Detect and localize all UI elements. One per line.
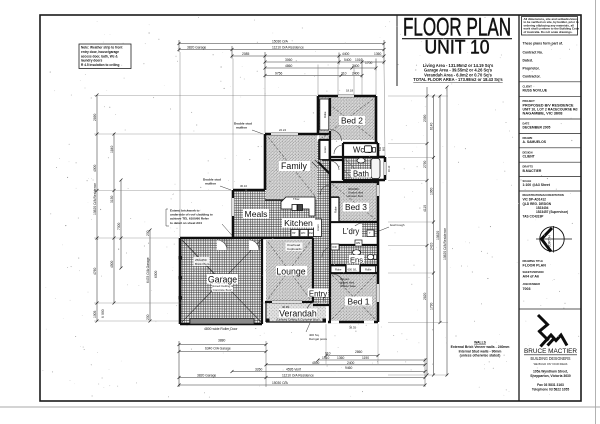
svg-text:Bed 3: Bed 3 bbox=[345, 202, 367, 212]
svg-text:7003: 7003 bbox=[523, 287, 531, 291]
svg-text:REGISTRATION/ACCREDITATION: REGISTRATION/ACCREDITATION bbox=[523, 193, 564, 197]
svg-text:Telephone 03 5822 1055: Telephone 03 5822 1055 bbox=[532, 387, 569, 391]
svg-text:2790: 2790 bbox=[423, 160, 427, 168]
svg-text:Linen: Linen bbox=[323, 146, 327, 153]
svg-text:2390: 2390 bbox=[423, 114, 427, 122]
svg-text:to detail on sheet A04: to detail on sheet A04 bbox=[170, 221, 202, 225]
svg-text:of Australia. Do not scale dra: of Australia. Do not scale drawings. bbox=[524, 30, 573, 34]
svg-text:4595 Verif: 4595 Verif bbox=[286, 368, 301, 372]
svg-text:Lounge: Lounge bbox=[276, 267, 305, 277]
svg-text:Dated.: Dated. bbox=[523, 58, 533, 62]
svg-text:L'dry: L'dry bbox=[343, 227, 360, 236]
svg-text:A. SAMUELOS: A. SAMUELOS bbox=[523, 140, 547, 144]
svg-text:CLIENT: CLIENT bbox=[523, 155, 536, 159]
svg-text:shower base: shower base bbox=[340, 284, 356, 288]
svg-text:3150: 3150 bbox=[110, 195, 114, 203]
svg-text:TOTAL FLOOR AREA - 173.98m2 or: TOTAL FLOOR AREA - 173.98m2 or 18.43 Sq'… bbox=[413, 77, 503, 82]
svg-text:These plans form part of.: These plans form part of. bbox=[523, 42, 564, 46]
svg-text:Wc: Wc bbox=[353, 145, 364, 154]
svg-text:DECEMBER 2005: DECEMBER 2005 bbox=[523, 126, 551, 130]
svg-text:16.10: 16.10 bbox=[388, 165, 391, 172]
svg-text:UNIT 10: UNIT 10 bbox=[425, 37, 490, 59]
svg-text:T/bar: T/bar bbox=[293, 197, 300, 201]
svg-text:4500: 4500 bbox=[110, 260, 114, 268]
svg-text:30.10: 30.10 bbox=[240, 184, 247, 188]
svg-text:4860: 4860 bbox=[285, 64, 293, 68]
svg-text:Meals: Meals bbox=[245, 209, 268, 219]
svg-text:6000: 6000 bbox=[154, 270, 158, 278]
svg-text:1060: 1060 bbox=[430, 187, 434, 195]
svg-text:3820 Garage: 3820 Garage bbox=[197, 374, 216, 378]
svg-text:105a Wyndham Street,: 105a Wyndham Street, bbox=[533, 370, 568, 374]
svg-text:Robe: Robe bbox=[365, 268, 372, 272]
svg-text:4760: 4760 bbox=[93, 267, 97, 275]
svg-text:WE BUILD ON YOUR IDEAS: WE BUILD ON YOUR IDEAS bbox=[534, 362, 568, 366]
svg-text:3820 Garage: 3820 Garage bbox=[187, 45, 206, 49]
svg-text:15030 O/A: 15030 O/A bbox=[272, 39, 289, 43]
svg-text:BRUCE MACTIER: BRUCE MACTIER bbox=[524, 348, 577, 355]
svg-text:mullion: mullion bbox=[236, 126, 247, 130]
svg-text:1190: 1190 bbox=[362, 356, 369, 360]
svg-text:Bed 2: Bed 2 bbox=[341, 116, 363, 126]
svg-text:2085: 2085 bbox=[242, 52, 250, 56]
svg-text:1840: 1840 bbox=[110, 145, 114, 153]
svg-text:3260: 3260 bbox=[255, 368, 263, 372]
svg-text:2860: 2860 bbox=[355, 350, 363, 354]
svg-text:40.99: 40.99 bbox=[282, 305, 289, 309]
svg-text:10820: 10820 bbox=[436, 231, 440, 240]
svg-text:4110: 4110 bbox=[423, 205, 427, 212]
svg-text:NAGAMBIE, VIC 3608: NAGAMBIE, VIC 3608 bbox=[523, 112, 563, 116]
svg-text:18.18: 18.18 bbox=[346, 89, 353, 93]
svg-text:Kitchen: Kitchen bbox=[284, 218, 313, 228]
svg-text:3060: 3060 bbox=[285, 58, 293, 62]
svg-text:NORTH: NORTH bbox=[548, 235, 552, 249]
svg-text:Ens: Ens bbox=[350, 255, 363, 264]
svg-text:1:100 @A3 Sheet: 1:100 @A3 Sheet bbox=[523, 183, 551, 187]
svg-text:2890: 2890 bbox=[93, 113, 97, 121]
svg-text:6478 O/A Garage: 6478 O/A Garage bbox=[146, 257, 150, 283]
svg-text:Contract No.: Contract No. bbox=[523, 51, 543, 55]
svg-text:1360: 1360 bbox=[337, 356, 345, 360]
svg-text:Cupboards: Cupboards bbox=[287, 247, 302, 251]
svg-text:JOB NUMBER: JOB NUMBER bbox=[523, 282, 541, 286]
svg-text:Dwngal posts: Dwngal posts bbox=[309, 337, 328, 341]
svg-text:BUILDING DESIGNERS: BUILDING DESIGNERS bbox=[531, 356, 571, 361]
svg-text:1910: 1910 bbox=[322, 356, 330, 360]
svg-text:910: 910 bbox=[325, 352, 331, 356]
svg-text:DRAWING TITLE: DRAWING TITLE bbox=[523, 259, 544, 263]
svg-text:10820 O/A Residence: 10820 O/A Residence bbox=[443, 228, 447, 260]
svg-text:1790: 1790 bbox=[430, 302, 434, 310]
svg-text:Garage: Garage bbox=[208, 275, 237, 285]
svg-text:D/R: D/R bbox=[333, 246, 337, 249]
svg-text:2820: 2820 bbox=[423, 292, 427, 300]
svg-text:Bath: Bath bbox=[353, 170, 369, 179]
svg-text:Robe: Robe bbox=[334, 206, 338, 213]
svg-text:Fax 03 5831 3163: Fax 03 5831 3163 bbox=[537, 383, 564, 387]
svg-text:600 S/L: 600 S/L bbox=[348, 268, 358, 272]
svg-text:RUSS NOVLUE: RUSS NOVLUE bbox=[523, 89, 548, 93]
svg-text:A04 of A6: A04 of A6 bbox=[523, 274, 539, 278]
svg-text:2400: 2400 bbox=[352, 71, 360, 75]
svg-text:bowl trough: bowl trough bbox=[390, 223, 405, 227]
svg-text:Robe: Robe bbox=[335, 268, 342, 272]
svg-text:Concrete floor): Concrete floor) bbox=[213, 288, 233, 292]
svg-text:9460: 9460 bbox=[345, 366, 353, 370]
svg-text:2400: 2400 bbox=[347, 361, 355, 365]
svg-text:4400: 4400 bbox=[342, 52, 350, 56]
svg-text:B.MACTIER: B.MACTIER bbox=[523, 169, 542, 173]
svg-text:Shepparton, Victoria 3630: Shepparton, Victoria 3630 bbox=[530, 374, 571, 378]
svg-text:1005: 1005 bbox=[93, 310, 97, 318]
svg-text:FLOOR PLAN: FLOOR PLAN bbox=[523, 264, 547, 268]
svg-text:11210 O/A Residence: 11210 O/A Residence bbox=[282, 374, 314, 378]
svg-text:4800 wide Roller Door: 4800 wide Roller Door bbox=[204, 327, 238, 331]
svg-text:Linen: Linen bbox=[316, 224, 320, 231]
svg-text:4000: 4000 bbox=[93, 164, 97, 172]
svg-text:WO: WO bbox=[301, 232, 305, 235]
svg-text:WM: WM bbox=[356, 242, 360, 245]
svg-text:1010: 1010 bbox=[355, 58, 363, 62]
svg-text:4590: 4590 bbox=[312, 361, 320, 365]
svg-text:Bed 1: Bed 1 bbox=[348, 297, 370, 307]
svg-text:22.24: 22.24 bbox=[279, 128, 286, 132]
svg-text:9756: 9756 bbox=[275, 71, 283, 75]
svg-text:Contractor.: Contractor. bbox=[523, 75, 541, 79]
svg-text:Brick Piers: Brick Piers bbox=[195, 262, 210, 266]
svg-text:shower floor: shower floor bbox=[348, 194, 363, 198]
svg-text:mullion: mullion bbox=[205, 182, 216, 186]
svg-text:Entry: Entry bbox=[309, 289, 327, 298]
svg-text:TAS CC4319P: TAS CC4319P bbox=[523, 214, 545, 218]
svg-text:230: 230 bbox=[146, 230, 150, 236]
svg-text:1360: 1360 bbox=[374, 52, 382, 56]
svg-text:230: 230 bbox=[146, 314, 150, 320]
svg-text:3880: 3880 bbox=[218, 339, 226, 343]
svg-text:(Unlined Ceiling & Concrete fl: (Unlined Ceiling & Concrete floor) bbox=[276, 317, 319, 321]
svg-text:38.35: 38.35 bbox=[349, 326, 356, 330]
svg-text:Robe: Robe bbox=[323, 111, 327, 118]
svg-text:HP: HP bbox=[292, 232, 296, 235]
svg-text:SHEET/VERSION: SHEET/VERSION bbox=[523, 270, 544, 274]
svg-text:5400: 5400 bbox=[344, 58, 352, 62]
svg-text:6140: 6140 bbox=[430, 122, 434, 130]
svg-text:Proprietor.: Proprietor. bbox=[523, 66, 540, 70]
svg-text:(unless otherwise stated): (unless otherwise stated) bbox=[460, 354, 501, 358]
svg-text:Family: Family bbox=[281, 161, 308, 171]
svg-text:11210 O/A Residence: 11210 O/A Residence bbox=[272, 45, 304, 49]
svg-text:2410: 2410 bbox=[430, 242, 434, 250]
svg-text:6340 O/A Garage: 6340 O/A Garage bbox=[205, 347, 231, 351]
svg-text:V 990: V 990 bbox=[101, 309, 105, 318]
svg-text:10820 O/A Residence: 10820 O/A Residence bbox=[93, 183, 97, 215]
svg-text:R 4.5 insulation to ceiling: R 4.5 insulation to ceiling bbox=[81, 63, 119, 67]
svg-text:1700: 1700 bbox=[365, 61, 373, 65]
svg-text:7300: 7300 bbox=[117, 222, 121, 230]
